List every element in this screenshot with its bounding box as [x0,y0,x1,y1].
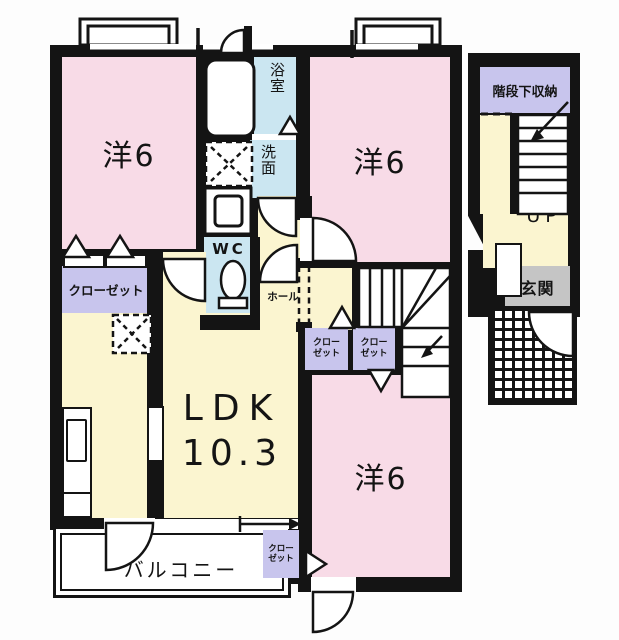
stair-treads-area [518,115,568,214]
closet-balcony-side: クロー ゼット [263,530,299,578]
closet-main: クローゼット [62,266,150,313]
hall-label: ホール [267,289,299,304]
stair-side-wall [510,115,518,214]
ldk-partition-wall-lower [147,460,164,518]
room-western-bottom-right: 洋6 [312,375,450,577]
room-western-top-left: 洋6 [62,57,196,249]
closet-small-left-label: クロー ゼット [313,338,340,360]
up-label-box: UP [518,204,570,228]
entrance-porch-tiles [488,306,577,405]
wall-frag-hall-mid [296,258,312,268]
bathroom: 浴室 [254,57,296,137]
hall-label-box: ホール [256,288,310,304]
under-stair-storage: 階段下収納 [480,67,570,113]
toilet-room-label: WC [204,240,254,258]
washroom-label: 洗面 [258,144,279,176]
up-label: UP [526,205,561,227]
closet-small-left-line1: クロー [313,338,340,349]
ldk-entry-gap-floor [163,252,206,313]
closet-balcony-side-label: クロー ゼット [268,544,294,564]
kitchen-sink [66,419,87,462]
closet-small-left: クロー ゼット [305,328,348,370]
entrance-genkan-label: 玄関 [520,275,554,299]
closet-balcony-side-line1: クロー [268,544,294,554]
under-stair-storage-label: 階段下収納 [492,81,557,100]
closet-small-left-line2: ゼット [313,349,340,360]
kitchen-counter-divider [64,492,90,494]
floorplan: 洋6 洋6 洋6 浴室 洗面 WC ホール クローゼット LDK 10.3 [0,0,619,640]
closet-balcony-side-line2: ゼット [268,554,294,564]
bathroom-label: 浴室 [267,62,288,94]
closet-small-right-line2: ゼット [360,349,387,360]
closet-small-right-line1: クロー [360,338,387,349]
ldk-partition-wall-upper [147,252,163,408]
room-western-top-left-label: 洋6 [102,131,155,175]
room-western-bottom-right-label: 洋6 [354,454,407,498]
washroom: 洗面 [250,140,296,198]
entrance-door-leaf [495,243,522,297]
closet-small-right-label: クロー ゼット [360,338,387,360]
wall-frag-hall-top [296,196,312,220]
balcony: バルコニー [53,526,291,598]
wall-frag-wc-right [250,237,260,319]
room-western-top-right-label: 洋6 [353,138,406,182]
toilet-room: WC [204,237,254,319]
room-western-top-right: 洋6 [310,57,450,262]
closet-main-label: クローゼット [68,280,143,299]
wall-frag-wc-bottom [200,315,260,330]
ldk-pillar [147,406,164,462]
balcony-label: バルコニー [124,554,239,583]
balcony-label-box: バルコニー [96,555,266,581]
corridor-floor [310,268,352,330]
closet-small-right: クロー ゼット [353,328,395,370]
